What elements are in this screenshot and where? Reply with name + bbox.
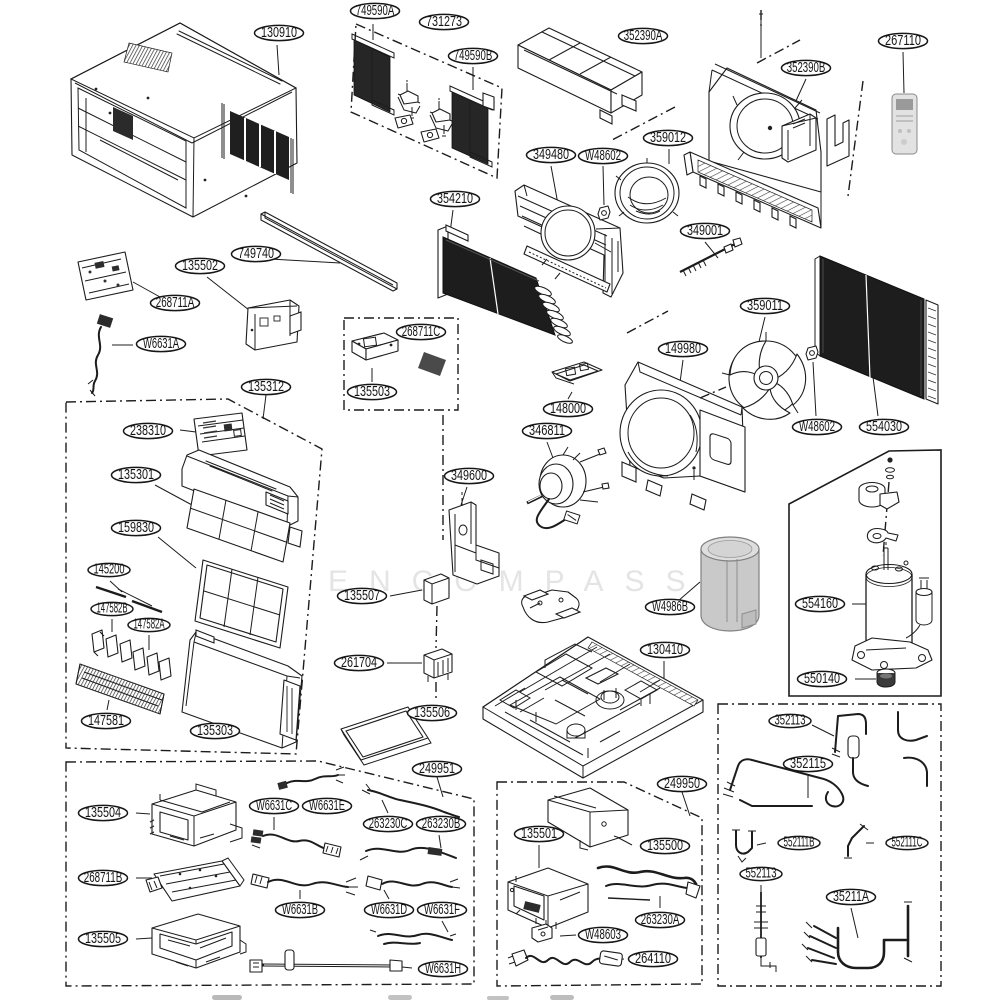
svg-text:263230A: 263230A: [641, 912, 680, 928]
svg-text:W6631F: W6631F: [424, 902, 460, 918]
svg-text:35211A: 35211A: [833, 889, 869, 905]
svg-text:W6631A: W6631A: [143, 336, 179, 352]
svg-text:749740: 749740: [238, 246, 274, 262]
svg-text:550140: 550140: [804, 671, 840, 687]
svg-text:W6631C: W6631C: [256, 798, 292, 814]
svg-text:268711B: 268711B: [84, 870, 123, 886]
svg-text:135502: 135502: [182, 258, 218, 274]
svg-text:352113: 352113: [775, 713, 806, 729]
svg-text:130410: 130410: [647, 642, 683, 658]
svg-text:135312: 135312: [248, 379, 284, 395]
svg-text:W48602: W48602: [799, 419, 835, 435]
svg-text:249951: 249951: [419, 761, 455, 777]
svg-text:145200: 145200: [94, 562, 125, 578]
svg-text:159830: 159830: [118, 520, 154, 536]
svg-text:135500: 135500: [647, 838, 683, 854]
svg-text:268711A: 268711A: [156, 295, 195, 311]
svg-text:552113: 552113: [746, 866, 777, 882]
svg-text:147581: 147581: [88, 713, 124, 729]
svg-text:135303: 135303: [197, 723, 233, 739]
svg-text:359011: 359011: [747, 298, 783, 314]
svg-text:349480: 349480: [533, 147, 569, 163]
svg-text:552111C: 552111C: [892, 835, 923, 851]
svg-text:135507: 135507: [344, 588, 380, 604]
svg-text:349600: 349600: [451, 468, 487, 484]
svg-text:W48602: W48602: [585, 148, 621, 164]
svg-text:261704: 261704: [341, 655, 377, 671]
svg-text:135504: 135504: [85, 805, 121, 821]
svg-text:264110: 264110: [635, 951, 671, 967]
svg-text:W4986B: W4986B: [652, 599, 688, 615]
svg-text:352390B: 352390B: [787, 60, 826, 76]
svg-text:W6631D: W6631D: [371, 902, 407, 918]
svg-text:W6631H: W6631H: [425, 961, 461, 977]
svg-text:346811: 346811: [529, 423, 565, 439]
svg-text:W6631B: W6631B: [282, 902, 318, 918]
svg-text:552111B: 552111B: [784, 835, 815, 851]
svg-text:359012: 359012: [650, 130, 686, 146]
svg-text:352115: 352115: [790, 756, 826, 772]
svg-text:135301: 135301: [118, 467, 154, 483]
svg-text:349001: 349001: [687, 223, 723, 239]
svg-text:W48603: W48603: [585, 927, 621, 943]
svg-text:149980: 149980: [665, 341, 701, 357]
svg-text:148000: 148000: [550, 401, 586, 417]
svg-text:135501: 135501: [521, 826, 557, 842]
svg-text:554160: 554160: [802, 596, 838, 612]
svg-text:135506: 135506: [414, 705, 450, 721]
svg-text:263230C: 263230C: [369, 816, 408, 832]
svg-text:354210: 354210: [437, 191, 473, 207]
svg-text:147582A: 147582A: [134, 617, 165, 633]
svg-text:263230B: 263230B: [422, 816, 461, 832]
svg-text:135505: 135505: [85, 931, 121, 947]
svg-text:238310: 238310: [130, 423, 166, 439]
svg-text:268711C: 268711C: [402, 324, 441, 340]
svg-text:749590A: 749590A: [356, 3, 395, 19]
svg-text:749590B: 749590B: [454, 48, 493, 64]
svg-text:130910: 130910: [261, 25, 297, 41]
svg-text:267110: 267110: [885, 33, 921, 49]
svg-text:135503: 135503: [354, 384, 390, 400]
svg-text:731273: 731273: [426, 14, 462, 30]
svg-text:352390A: 352390A: [624, 28, 663, 44]
svg-text:249950: 249950: [664, 776, 700, 792]
svg-text:554030: 554030: [866, 419, 902, 435]
svg-text:147582B: 147582B: [97, 601, 128, 617]
svg-text:W6631E: W6631E: [309, 798, 345, 814]
